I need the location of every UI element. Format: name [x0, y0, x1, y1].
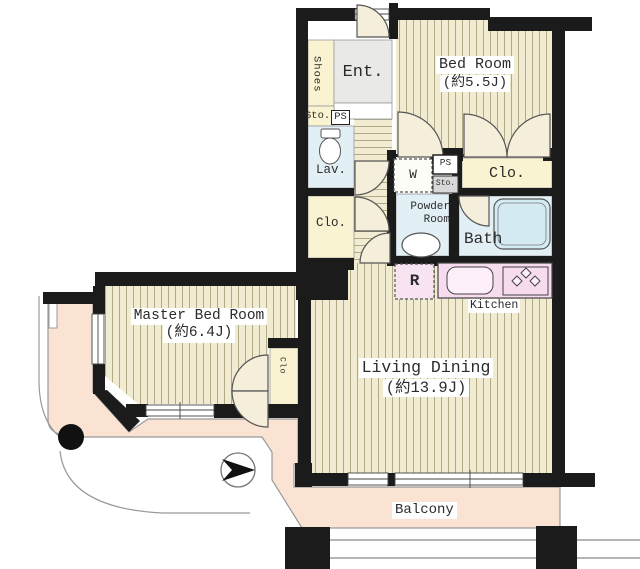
post-outline [49, 303, 57, 328]
label-powder-line1: Powder [410, 201, 450, 213]
label-bath: Bath [464, 230, 502, 249]
label-master-size: (約6.4J) [163, 325, 236, 342]
label-kitchen: Kitchen [468, 299, 520, 313]
kitchen-sink-icon [447, 267, 493, 294]
label-bed-room-name: Bed Room [436, 56, 514, 74]
label-balcony: Balcony [392, 502, 457, 519]
label-ps-hall: PS [331, 110, 350, 125]
label-ps-shaft: PS [433, 157, 458, 168]
site-boundary-lines [330, 540, 640, 558]
label-bed-room: Bed Room (約5.5J) [415, 56, 535, 92]
label-sto-shaft: Sto. [433, 179, 458, 189]
label-living-size: (約13.9J) [383, 379, 470, 398]
label-master-bed-room: Master Bed Room (約6.4J) [118, 308, 280, 343]
label-powder-room: Powder Room [394, 201, 450, 227]
label-bed-room-size: (約5.5J) [440, 75, 510, 92]
compass-arrow-icon [221, 453, 255, 487]
label-washer: W [394, 167, 432, 183]
pillar-right [536, 526, 577, 569]
stove-icon [503, 267, 548, 295]
label-storage-hall: Sto. [305, 110, 330, 123]
floor-plan-canvas: Shoes Ent. Sto.PS Lav. Clo. Bed Room (約5… [0, 0, 640, 569]
kitchen-counter [438, 263, 552, 298]
pillar-left [285, 527, 330, 569]
label-master-name: Master Bed Room [131, 308, 268, 325]
label-living-name: Living Dining [359, 358, 494, 378]
label-closet-master: Clo [277, 357, 287, 374]
walkway-outline-2 [60, 451, 250, 513]
label-living-dining: Living Dining (約13.9J) [356, 358, 496, 398]
toilet-icon [320, 129, 341, 164]
label-refrigerator: R [395, 272, 434, 291]
landscape-circle-icon [58, 424, 84, 450]
label-lavatory: Lav. [308, 163, 354, 178]
sink-icon [402, 233, 440, 257]
label-powder-line2: Room [424, 214, 450, 226]
label-closet-bedroom: Clo. [462, 165, 552, 183]
label-entrance: Ent. [334, 63, 392, 83]
label-closet-hall: Clo. [308, 216, 354, 231]
label-shoes: Shoes [310, 56, 323, 93]
